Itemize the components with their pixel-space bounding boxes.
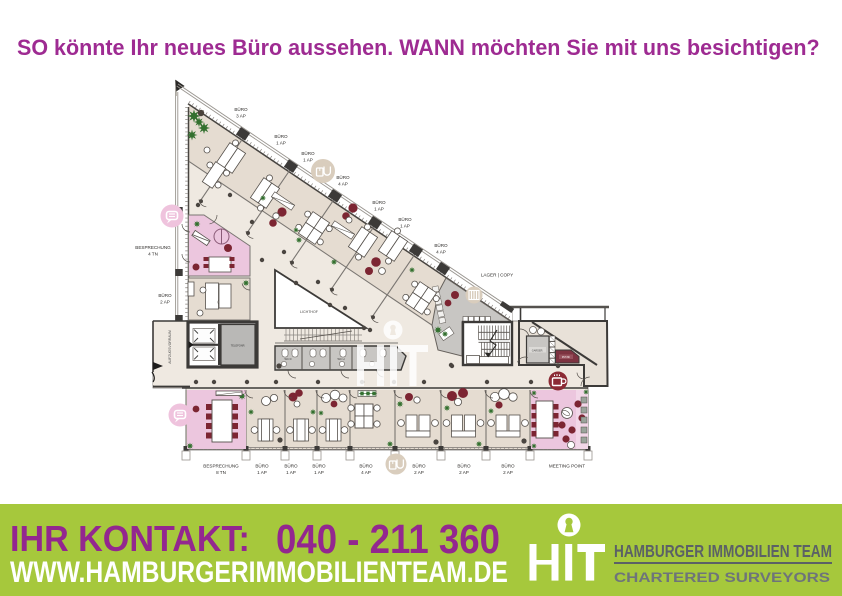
svg-text:WC D: WC D xyxy=(285,357,292,361)
svg-text:4 AP: 4 AP xyxy=(361,470,371,475)
svg-text:BÜRO: BÜRO xyxy=(398,216,412,222)
svg-text:2 AP: 2 AP xyxy=(160,300,170,305)
svg-text:MEETING POINT: MEETING POINT xyxy=(549,464,585,469)
svg-text:LAGER | COPY: LAGER | COPY xyxy=(481,273,513,278)
svg-text:1 AP: 1 AP xyxy=(400,224,410,229)
svg-text:LICHTHOF: LICHTHOF xyxy=(300,310,319,314)
svg-text:4 AP: 4 AP xyxy=(436,250,446,255)
svg-text:BESPRECHUNG: BESPRECHUNG xyxy=(203,464,239,469)
svg-text:1 AP: 1 AP xyxy=(303,158,313,163)
svg-text:BÜRO: BÜRO xyxy=(284,463,298,469)
svg-text:BÜRO: BÜRO xyxy=(312,463,326,469)
svg-text:BÜRO: BÜRO xyxy=(501,463,515,469)
svg-text:BÜRO: BÜRO xyxy=(158,292,172,298)
svg-text:1 AP: 1 AP xyxy=(286,470,296,475)
svg-text:TELEFONR.: TELEFONR. xyxy=(231,344,246,348)
svg-text:8 TN: 8 TN xyxy=(216,470,226,475)
svg-text:BÜRO: BÜRO xyxy=(255,463,269,469)
svg-text:3 AP: 3 AP xyxy=(236,114,246,119)
svg-text:BÜRO: BÜRO xyxy=(359,463,373,469)
svg-text:1 AP: 1 AP xyxy=(314,470,324,475)
svg-text:GARDER.: GARDER. xyxy=(532,350,544,353)
svg-text:BÜRO: BÜRO xyxy=(301,150,315,156)
svg-text:BÜRO: BÜRO xyxy=(412,463,426,469)
svg-text:BÜRO: BÜRO xyxy=(457,463,471,469)
svg-text:HAMBURGER IMMOBILIEN TEAM: HAMBURGER IMMOBILIEN TEAM xyxy=(614,541,832,561)
svg-text:BÜRO: BÜRO xyxy=(274,133,288,139)
svg-text:1 AP: 1 AP xyxy=(374,207,384,212)
svg-text:4 TN: 4 TN xyxy=(148,252,158,257)
svg-text:BÜRO: BÜRO xyxy=(336,174,350,180)
svg-text:4 AP: 4 AP xyxy=(338,182,348,187)
svg-text:BESPRECHUNG: BESPRECHUNG xyxy=(135,245,171,250)
svg-text:1 AP: 1 AP xyxy=(257,470,267,475)
svg-text:BÜRO: BÜRO xyxy=(434,242,448,248)
svg-text:2 AP: 2 AP xyxy=(503,470,513,475)
svg-text:2 AP: 2 AP xyxy=(414,470,424,475)
svg-text:WC H: WC H xyxy=(338,357,345,361)
svg-text:1 AP: 1 AP xyxy=(276,141,286,146)
svg-text:BÜRO: BÜRO xyxy=(372,199,386,205)
svg-text:PUTZR.: PUTZR. xyxy=(562,357,571,359)
svg-text:2 AP: 2 AP xyxy=(459,470,469,475)
svg-text:AUFZUGSVORRAUM: AUFZUGSVORRAUM xyxy=(168,330,172,364)
svg-text:BÜRO: BÜRO xyxy=(234,106,248,112)
svg-text:CHARTERED SURVEYORS: CHARTERED SURVEYORS xyxy=(614,570,830,585)
